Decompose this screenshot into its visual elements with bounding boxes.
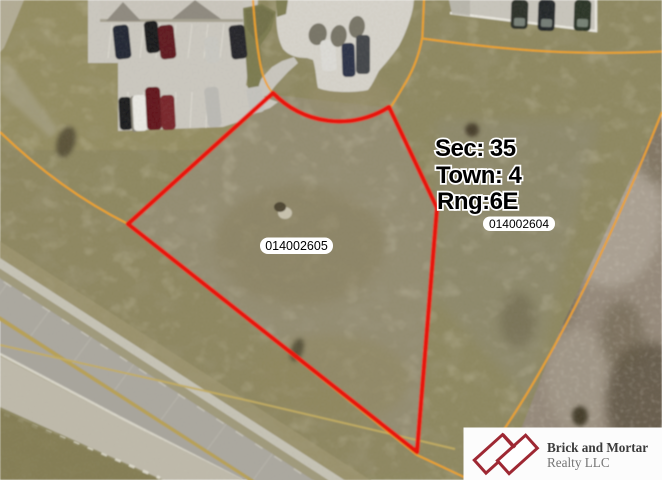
svg-text:Realty LLC: Realty LLC <box>547 455 610 470</box>
svg-text:014002604: 014002604 <box>489 217 549 231</box>
svg-text:Rng:6E: Rng:6E <box>437 188 518 215</box>
svg-text:014002605: 014002605 <box>265 239 328 253</box>
svg-text:Sec: 35: Sec: 35 <box>435 135 516 162</box>
svg-text:Town: 4: Town: 4 <box>436 162 523 189</box>
svg-text:Brick and Mortar: Brick and Mortar <box>547 440 648 455</box>
